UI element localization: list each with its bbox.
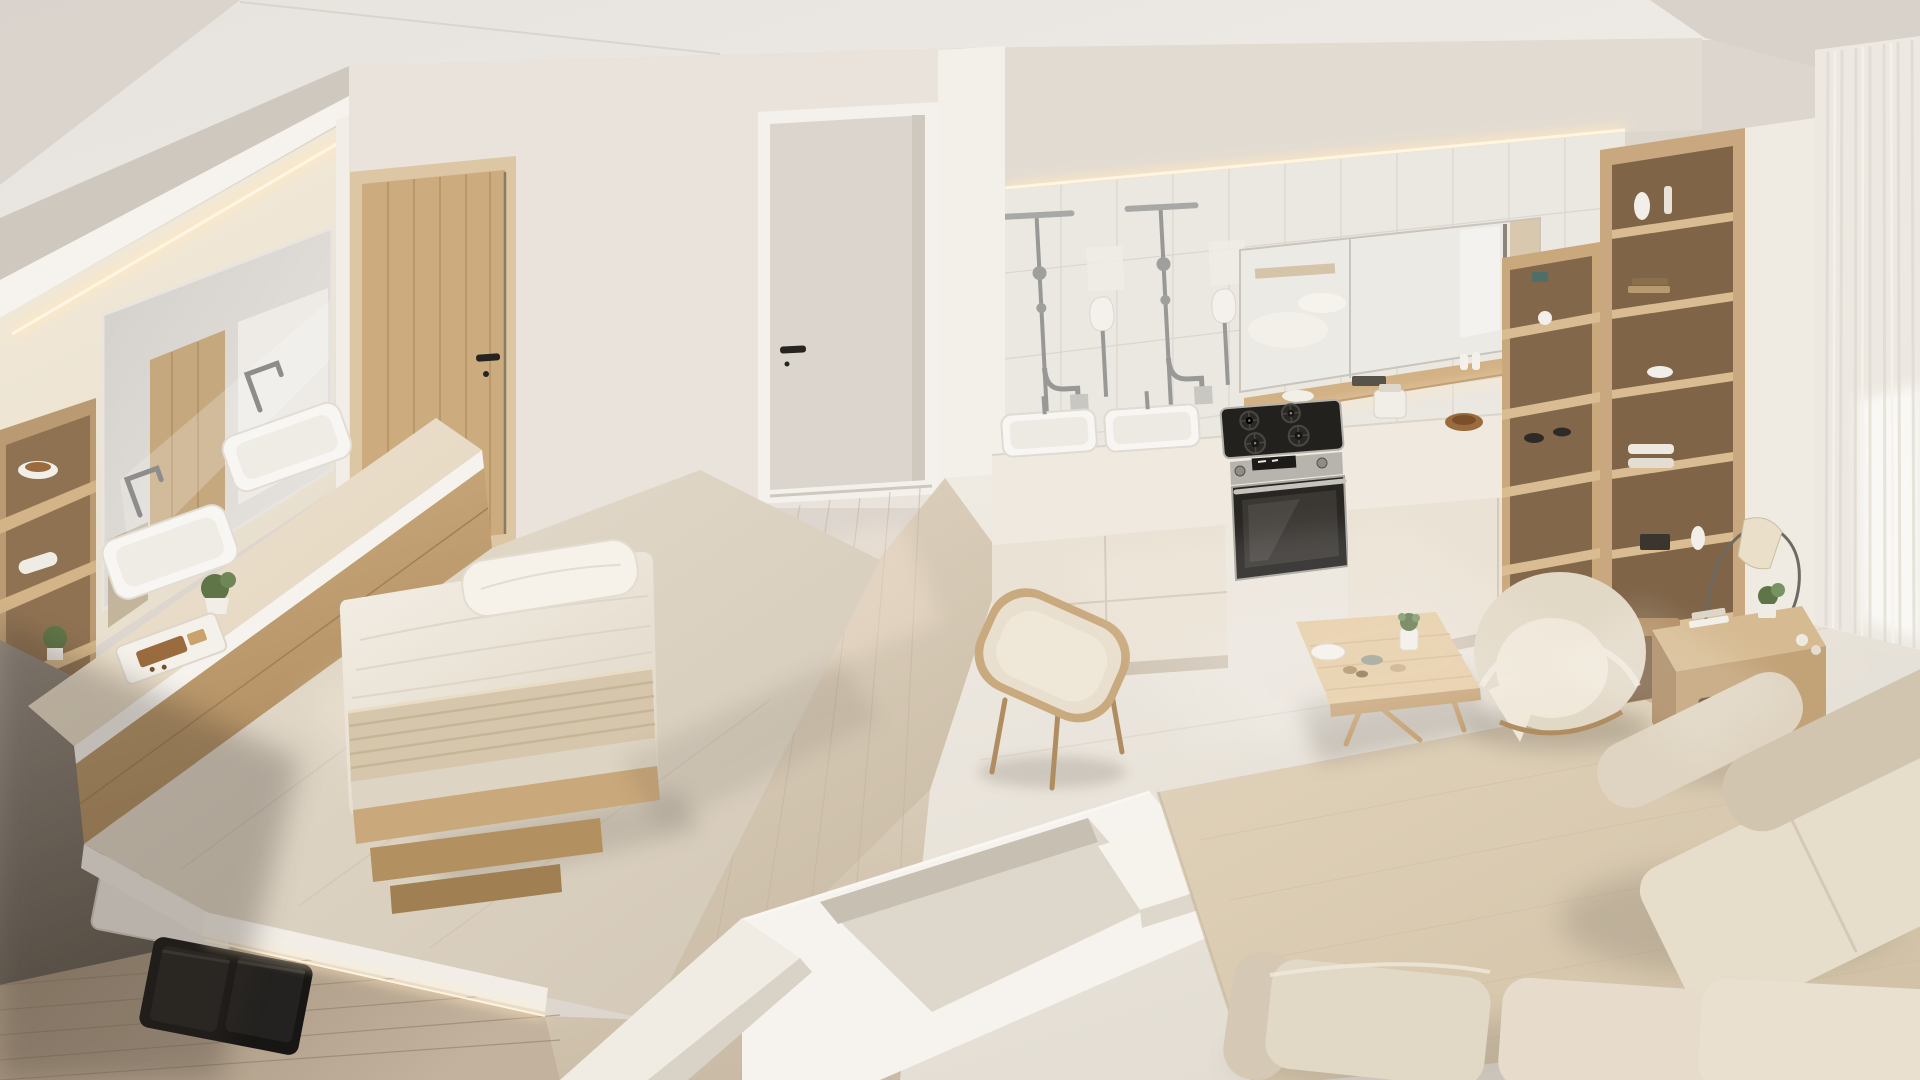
shelf-bowl-food (25, 462, 51, 472)
door-keyhole (483, 371, 489, 377)
bread (1452, 415, 1476, 425)
counter-plant-pot (205, 598, 229, 614)
side-table-plant-leaf (1771, 583, 1785, 597)
dark-box (1640, 534, 1670, 550)
oven-knob-2 (1317, 458, 1327, 468)
hall-door-handle (780, 345, 806, 353)
soap-dish (1282, 390, 1314, 402)
shelf-bottle (1664, 186, 1672, 214)
corner-shelf-teal-item (1532, 272, 1548, 282)
decor-pebble-2 (1811, 645, 1821, 655)
decor-pebble-1 (1796, 634, 1808, 646)
corner-shelf-pot (1538, 311, 1552, 325)
folded-towel-2 (1628, 458, 1674, 468)
oven-knob-1 (1235, 466, 1245, 476)
bottle-2 (1472, 352, 1480, 370)
hall-door-edge-shade (912, 115, 925, 481)
apartment-render (0, 0, 1920, 1080)
side-table-pot (1758, 604, 1776, 618)
reflected-pillow (1298, 293, 1346, 313)
reflected-window (1460, 226, 1500, 338)
reflected-duvet (1248, 312, 1328, 348)
hall-door-lock (785, 362, 790, 367)
counter-plant-leaf (220, 572, 236, 588)
bottle-1 (1460, 354, 1468, 370)
window-and-curtain (1815, 36, 1920, 720)
book-1 (1628, 286, 1670, 293)
folded-towel-1 (1628, 444, 1674, 454)
scene (0, 0, 1920, 1080)
corner-shelf-dark-item-1 (1524, 433, 1544, 443)
shelf-vase-1 (1634, 192, 1650, 220)
book-2 (1632, 278, 1668, 285)
hall-door-slab (770, 115, 925, 490)
gas-cooktop (1220, 399, 1344, 458)
glass-jar (1374, 390, 1406, 418)
shelf-vase-2 (1691, 526, 1705, 550)
sofa-bottom-chaise (1697, 978, 1920, 1080)
window-glow (1858, 385, 1920, 640)
white-hall-door (758, 102, 938, 504)
shelf-bowl-2 (1647, 366, 1673, 378)
jar-lid (1379, 384, 1401, 392)
corner-shelf-dark-item-2 (1553, 428, 1571, 437)
